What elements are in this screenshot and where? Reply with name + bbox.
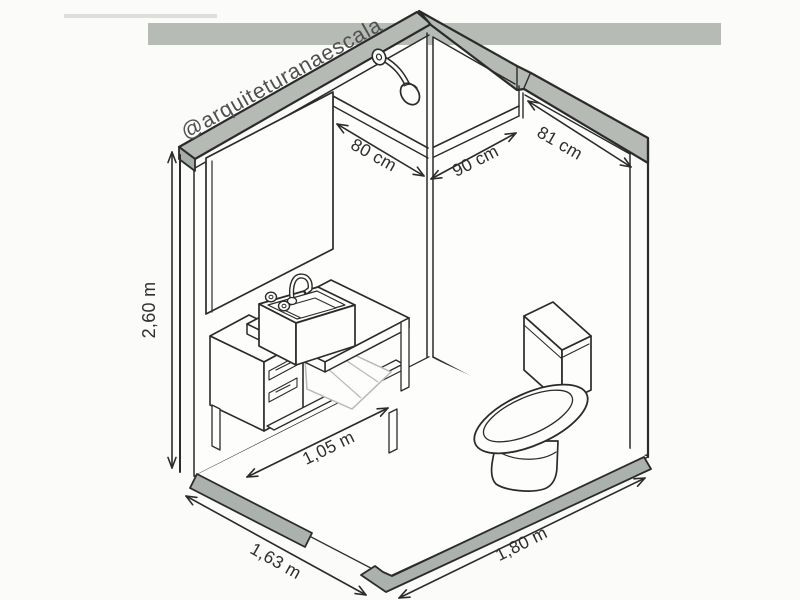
diagram-canvas: 2,60 m 80 cm 90 cm 81 cm 1,05 m 1,63 m 1… [0,0,800,600]
faucet-knob-2-center [282,304,286,307]
top-hairline [64,14,217,18]
vanity-leg-right [389,409,397,453]
vanity-leg-left [212,405,220,450]
bathroom-isometric-plan: 2,60 m 80 cm 90 cm 81 cm 1,05 m 1,63 m 1… [0,0,800,600]
dim-label-wall-height: 2,60 m [139,282,159,339]
dim-line-wall-height [168,152,176,468]
faucet-knob-1-center [269,295,273,298]
counter-side-panel [401,318,409,391]
